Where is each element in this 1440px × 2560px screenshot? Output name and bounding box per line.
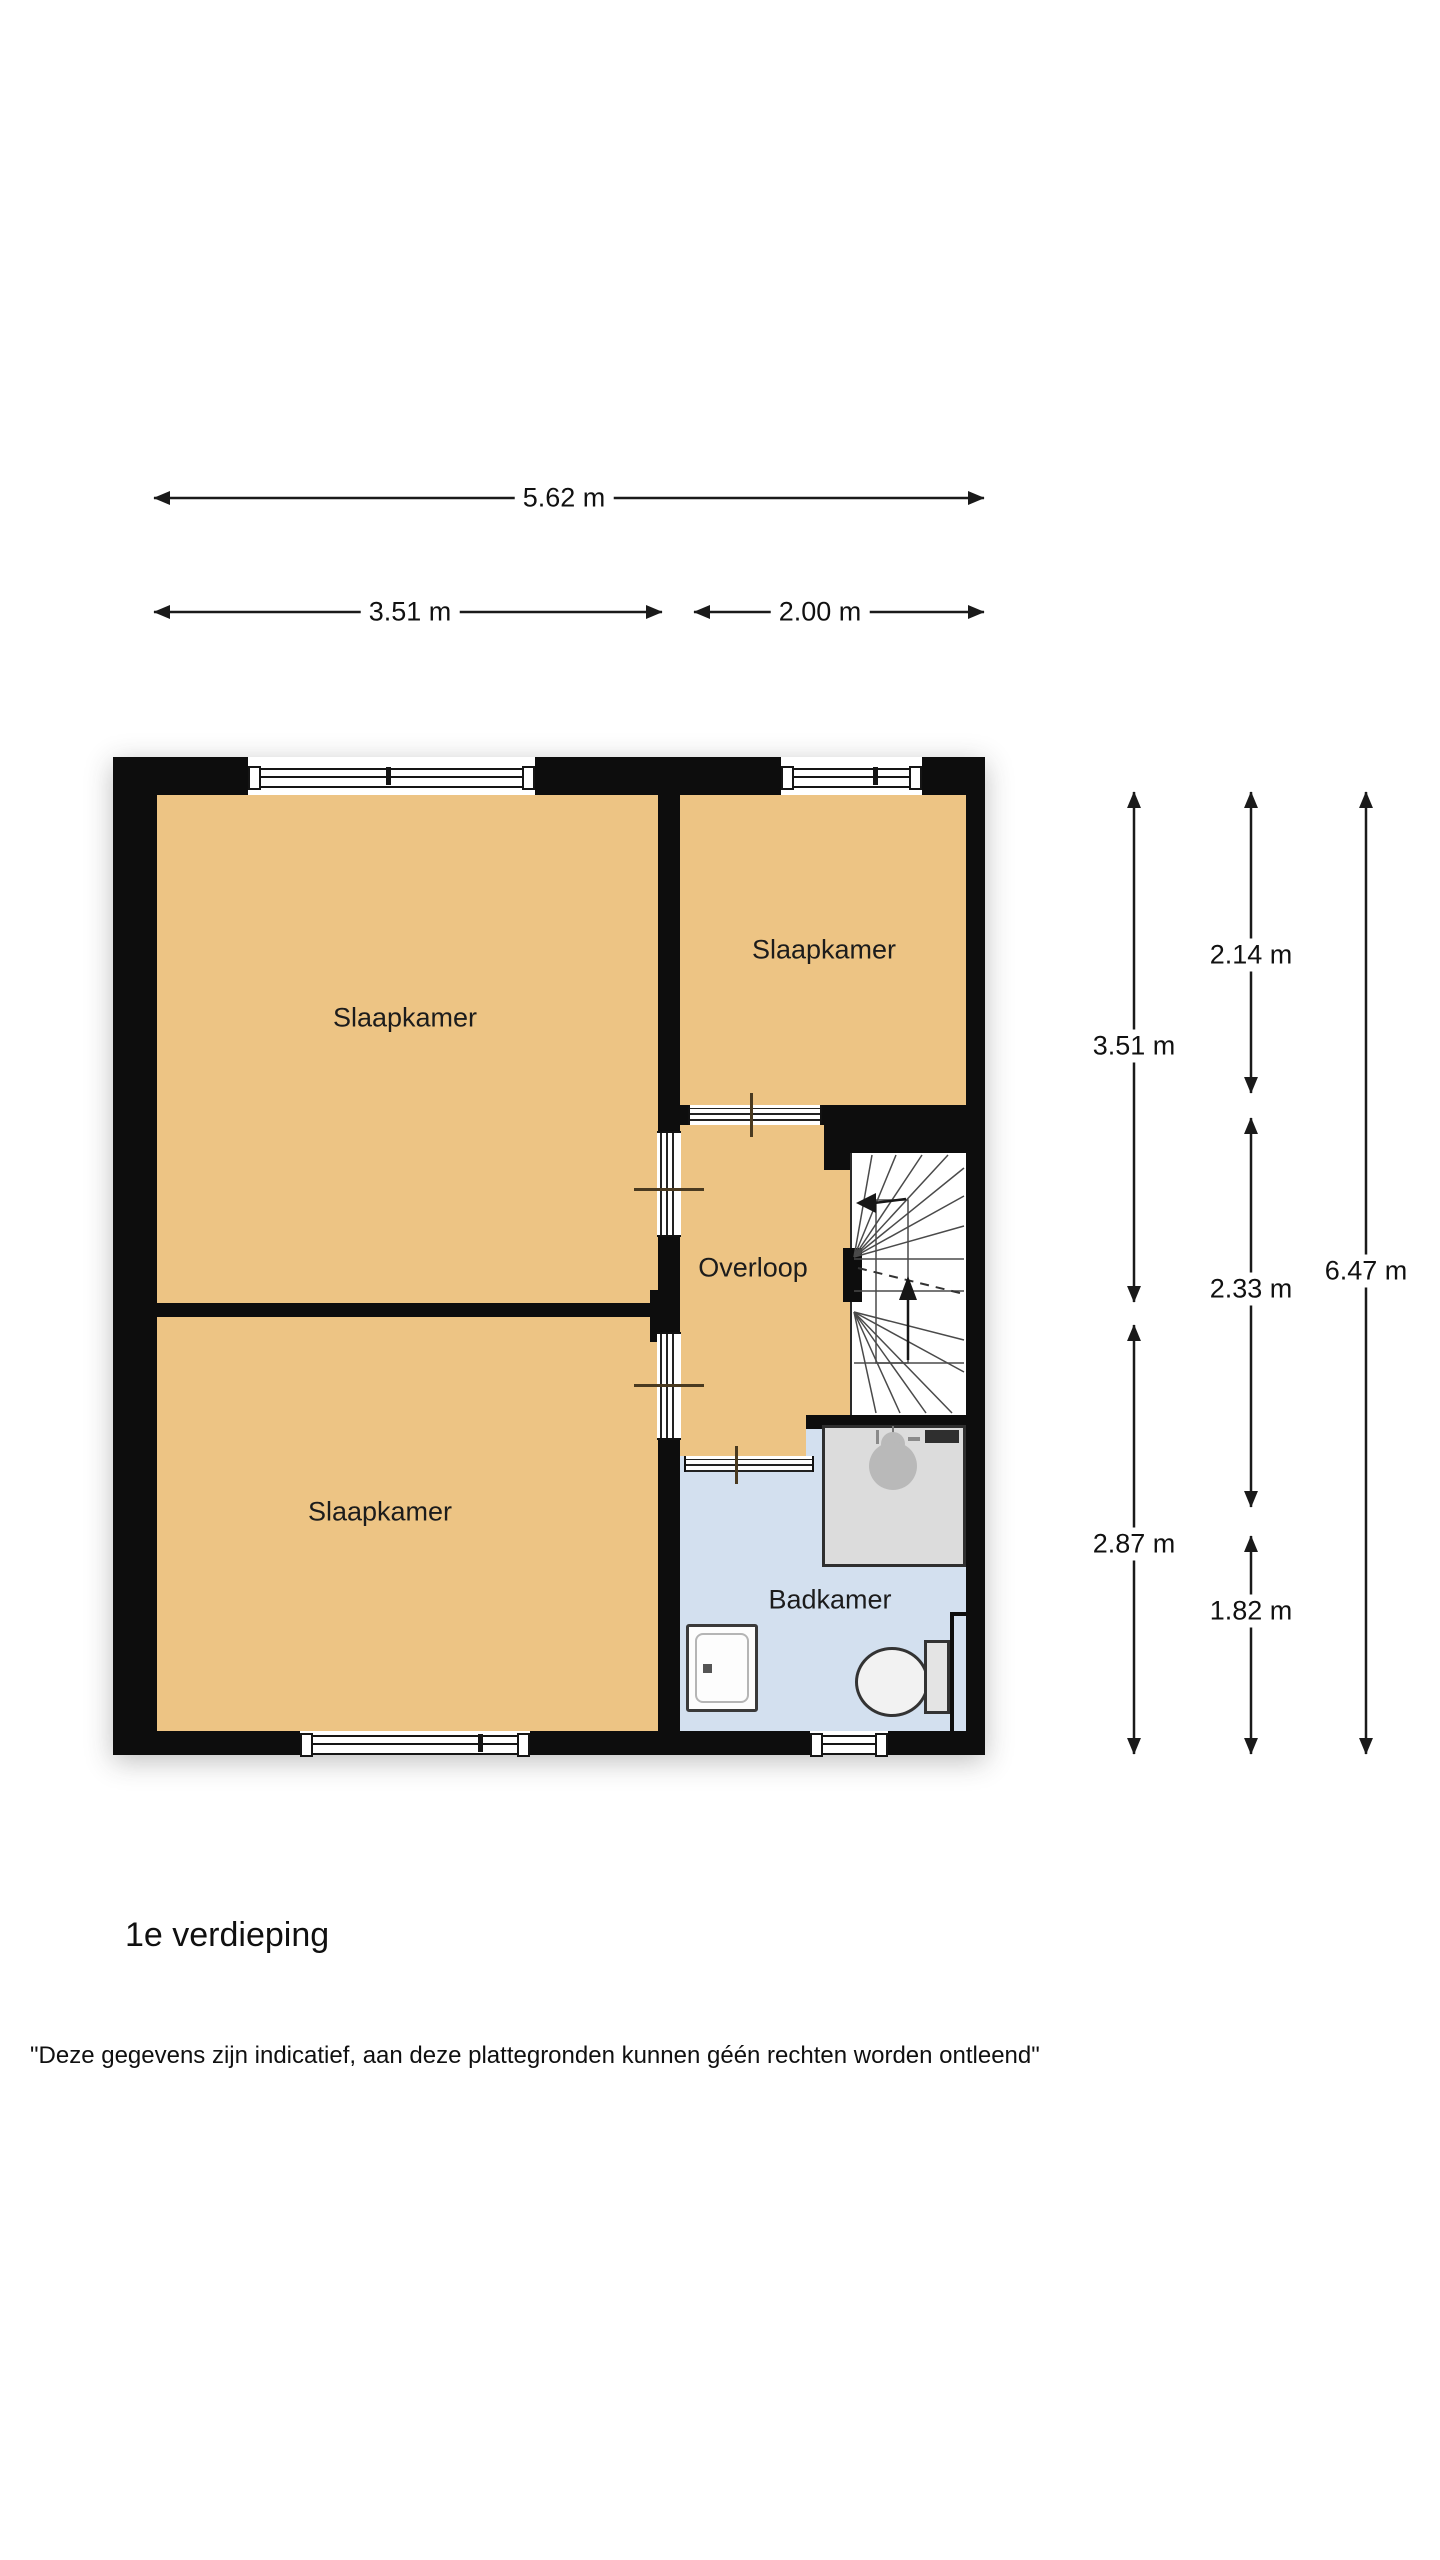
door-bathroom xyxy=(684,1456,814,1472)
wall-toilet-partition-vertical xyxy=(950,1612,954,1731)
disclaimer-text: "Deze gegevens zijn indicatief, aan deze… xyxy=(30,2042,1040,2070)
wall-exterior-right xyxy=(966,757,985,1755)
window-end-cap xyxy=(517,1733,530,1757)
window-glazing xyxy=(250,768,533,788)
floor-title: 1e verdieping xyxy=(125,1916,329,1955)
window-mullion xyxy=(873,767,878,785)
wall-stair-corner-horizontal xyxy=(846,1125,985,1153)
dim-label-total-width: 5.62 m xyxy=(515,482,614,515)
door-swing-tick xyxy=(735,1446,738,1484)
wall-between-left-bedrooms xyxy=(157,1303,658,1317)
door-swing-tick xyxy=(750,1093,753,1137)
door-top-right-bedroom xyxy=(688,1105,822,1125)
wall-toilet-partition-horizontal xyxy=(950,1612,966,1616)
door-swing-tick xyxy=(634,1384,704,1387)
window-end-cap xyxy=(300,1733,313,1757)
toilet-tank-icon xyxy=(924,1640,950,1714)
staircase-area xyxy=(850,1153,968,1415)
room-label-landing: Overloop xyxy=(698,1253,808,1284)
room-label-bedroom-top-right: Slaapkamer xyxy=(752,935,896,966)
shower-faucet-mark xyxy=(876,1430,879,1444)
window-mullion xyxy=(386,767,391,785)
window-end-cap xyxy=(781,766,794,790)
dim-label-inner-left-top: 3.51 m xyxy=(1085,1030,1184,1063)
room-label-bathroom: Badkamer xyxy=(768,1585,891,1616)
window-bottom-left-bedroom xyxy=(300,1731,530,1755)
door-swing-tick xyxy=(634,1188,704,1191)
wall-exterior-left xyxy=(113,757,157,1755)
wall-stair-stub xyxy=(843,1248,862,1302)
room-landing-lower xyxy=(680,1415,806,1456)
window-end-cap xyxy=(875,1733,888,1757)
window-top-right-bedroom xyxy=(781,757,922,795)
window-glazing xyxy=(302,1735,528,1755)
door-leaf xyxy=(690,1108,820,1121)
window-end-cap xyxy=(522,766,535,790)
window-end-cap xyxy=(909,766,922,790)
room-label-bedroom-top-left: Slaapkamer xyxy=(333,1003,477,1034)
wall-center-divider xyxy=(658,795,680,1731)
dim-label-inner-mid-bottom: 1.82 m xyxy=(1202,1595,1301,1628)
window-end-cap xyxy=(248,766,261,790)
window-glazing xyxy=(783,768,920,788)
room-bedroom-top-left xyxy=(157,795,658,1303)
dim-label-left-width: 3.51 m xyxy=(361,596,460,629)
shower-head-icon xyxy=(869,1442,917,1490)
dim-label-inner-left-bottom: 2.87 m xyxy=(1085,1528,1184,1561)
shower-control-panel xyxy=(925,1430,959,1443)
door-leaf xyxy=(660,1133,675,1235)
door-top-left-bedroom xyxy=(657,1131,681,1237)
window-end-cap xyxy=(810,1733,823,1757)
window-bathroom xyxy=(810,1731,888,1755)
drain-icon xyxy=(703,1664,712,1673)
floorplan-page: Slaapkamer Slaapkamer Slaapkamer Overloo… xyxy=(0,0,1440,2560)
window-mullion xyxy=(478,1734,483,1752)
toilet-bowl-icon xyxy=(855,1647,929,1717)
door-leaf xyxy=(686,1459,812,1472)
dim-label-outer-total: 6.47 m xyxy=(1317,1255,1416,1288)
dim-label-inner-mid-middle: 2.33 m xyxy=(1202,1273,1301,1306)
dim-label-inner-mid-top: 2.14 m xyxy=(1202,939,1301,972)
shower-faucet-mark xyxy=(908,1437,920,1441)
dim-label-right-width: 2.00 m xyxy=(771,596,870,629)
window-top-left-bedroom xyxy=(248,757,535,795)
room-label-bedroom-bottom-left: Slaapkamer xyxy=(308,1497,452,1528)
